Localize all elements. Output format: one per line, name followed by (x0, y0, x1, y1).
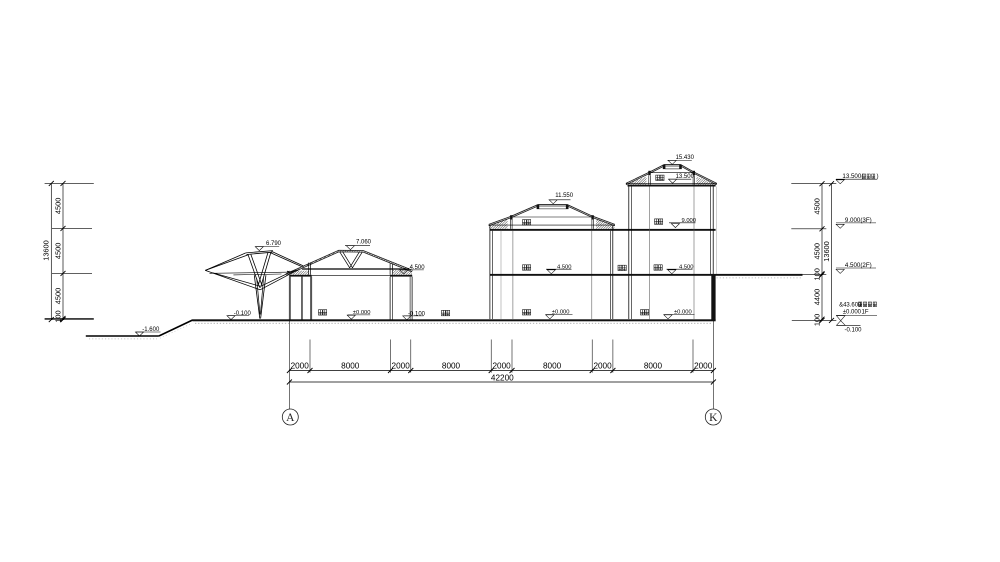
svg-text:100: 100 (812, 314, 821, 326)
svg-text:13600: 13600 (42, 240, 51, 261)
svg-text:6.790: 6.790 (266, 241, 282, 247)
svg-text:): ) (877, 173, 879, 180)
svg-text:9.000(3F): 9.000(3F) (845, 217, 872, 224)
svg-text:42200: 42200 (491, 373, 514, 382)
svg-text:13.500(: 13.500( (842, 173, 864, 180)
svg-text:±0.000: ±0.000 (674, 310, 692, 316)
svg-text:4500: 4500 (54, 243, 63, 259)
svg-text:-0.100: -0.100 (408, 312, 426, 318)
svg-text:A: A (286, 412, 295, 424)
svg-text:4500: 4500 (812, 243, 821, 259)
svg-text:4.500: 4.500 (557, 264, 572, 270)
svg-text:2000: 2000 (593, 362, 612, 371)
svg-text:4.500(2F): 4.500(2F) (845, 262, 872, 269)
svg-text:-1.600: -1.600 (142, 327, 160, 333)
svg-text:11.550: 11.550 (555, 193, 574, 199)
svg-text:2000: 2000 (492, 362, 511, 371)
svg-text:13.500: 13.500 (676, 174, 695, 180)
svg-text:4.500: 4.500 (679, 264, 694, 270)
svg-text:4.500: 4.500 (410, 265, 426, 271)
svg-text:4500: 4500 (54, 198, 63, 214)
svg-text:15.430: 15.430 (676, 155, 695, 161)
svg-text:13600: 13600 (822, 241, 831, 262)
svg-text:-0.100: -0.100 (845, 327, 863, 333)
svg-text:8000: 8000 (341, 362, 360, 371)
svg-text:4400: 4400 (812, 289, 821, 305)
svg-text:±0.000: ±0.000 (552, 310, 570, 316)
svg-text:K: K (709, 412, 718, 424)
svg-text:4500: 4500 (812, 198, 821, 214)
svg-text:±0.000: ±0.000 (843, 309, 862, 315)
svg-text:2000: 2000 (694, 362, 713, 371)
svg-text:8000: 8000 (442, 362, 461, 371)
svg-text:8000: 8000 (644, 362, 663, 371)
svg-text:7.060: 7.060 (356, 240, 372, 246)
svg-text:-0.100: -0.100 (234, 311, 252, 317)
svg-text:8000: 8000 (543, 362, 562, 371)
svg-text:100: 100 (54, 310, 63, 322)
svg-text:1F: 1F (862, 309, 869, 315)
svg-text:4500: 4500 (54, 288, 63, 304)
svg-text:2000: 2000 (392, 362, 411, 371)
svg-text:2000: 2000 (291, 362, 310, 371)
svg-text:±0.000: ±0.000 (353, 310, 371, 316)
svg-text:100: 100 (812, 268, 821, 280)
svg-text:9.000: 9.000 (682, 218, 697, 224)
